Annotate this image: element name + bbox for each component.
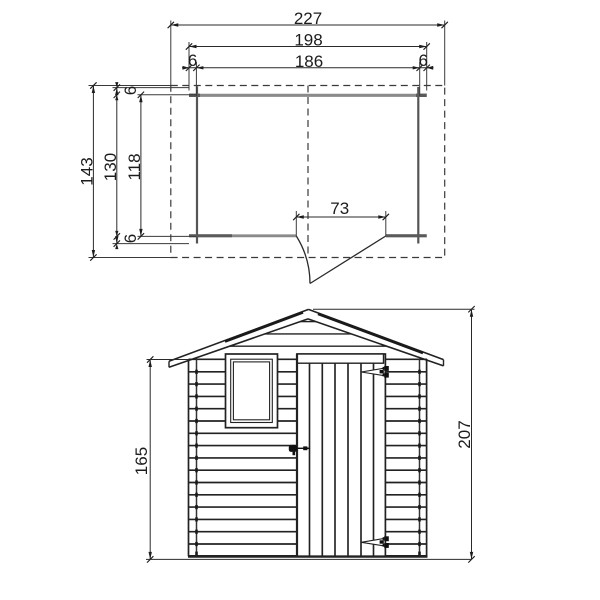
svg-text:130: 130 bbox=[101, 153, 120, 181]
svg-text:6: 6 bbox=[188, 51, 197, 70]
svg-text:227: 227 bbox=[294, 9, 322, 28]
svg-text:165: 165 bbox=[132, 447, 151, 475]
svg-text:73: 73 bbox=[330, 199, 349, 218]
svg-text:186: 186 bbox=[295, 52, 323, 71]
svg-text:6: 6 bbox=[121, 86, 140, 95]
svg-text:6: 6 bbox=[121, 234, 140, 243]
svg-text:118: 118 bbox=[125, 153, 144, 180]
svg-text:198: 198 bbox=[294, 31, 322, 50]
svg-text:207: 207 bbox=[455, 420, 474, 448]
svg-text:143: 143 bbox=[78, 157, 97, 185]
svg-text:6: 6 bbox=[418, 51, 427, 70]
